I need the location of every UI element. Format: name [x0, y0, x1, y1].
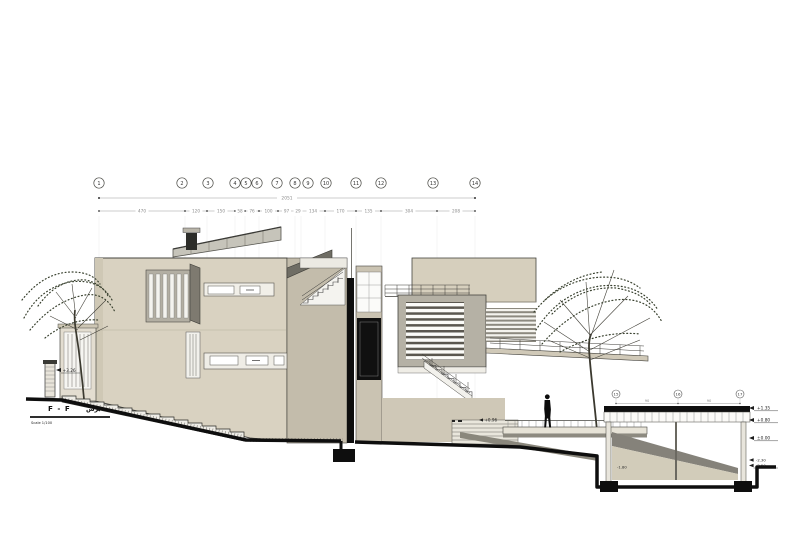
segment-dimension-label: 208 — [452, 208, 460, 213]
scale-label: Scale 1/100 — [31, 421, 53, 425]
basement-level-label: -1.80 — [617, 465, 627, 470]
right-wall — [741, 422, 746, 482]
left-wing: +3.26 — [43, 324, 98, 401]
segment-dimension-label: 29 — [295, 208, 301, 213]
level-label: -2.50 — [756, 463, 766, 468]
grid-label: 8 — [293, 181, 296, 187]
segment-dimension-label: 76 — [249, 208, 255, 213]
terrain-pier-footing — [333, 449, 355, 462]
grid-label: 6 — [255, 181, 258, 187]
window-pane — [210, 356, 238, 365]
window-pane — [274, 356, 284, 365]
chimney-body — [186, 233, 197, 250]
segment-dimension-label: 120 — [192, 208, 200, 213]
overall-dimension-label: 2051 — [281, 196, 292, 202]
person-silhouette — [544, 394, 551, 427]
segment-dimension-label: 134 — [309, 208, 317, 213]
landing-marker-b — [458, 420, 462, 422]
grid-label: 3 — [206, 181, 209, 187]
grid-bubbles: 1 2 3 4 5 6 7 8 9 10 11 12 13 14 — [94, 178, 480, 188]
section-cut-wall — [347, 278, 354, 443]
overall-dimension-line: 2051 — [98, 195, 476, 201]
section-drawing: 1 2 3 4 5 6 7 8 9 10 11 12 13 14 2051 — [0, 0, 787, 556]
level-arrow-icon — [749, 436, 754, 440]
right-upper-volumes — [385, 258, 648, 403]
segment-dimension-label: 135 — [365, 208, 373, 213]
sub-grid-dimension: 90 — [707, 399, 712, 403]
grid-label: 1 — [97, 181, 100, 187]
segment-dimension-label: 100 — [265, 208, 273, 213]
segment-dimension-label: 58 — [237, 208, 243, 213]
section-title-arabic: برش — [86, 406, 101, 413]
architectural-section-sheet: 1 2 3 4 5 6 7 8 9 10 11 12 13 14 2051 — [0, 0, 787, 556]
tower-dark-window — [357, 318, 381, 380]
segment-dimension-line: 470 120 150 58 76 100 97 29 134 170 135 … — [98, 208, 476, 213]
grid-label: 9 — [306, 181, 309, 187]
mid-landing-level-label: +0.96 — [485, 418, 498, 423]
stair-landing-band — [300, 258, 347, 268]
roof-slab — [604, 406, 750, 412]
gate-pedestal — [45, 363, 55, 397]
pedestal-cap — [43, 360, 57, 364]
middle-post — [675, 422, 677, 480]
left-wall — [606, 422, 611, 482]
level-label: -2.30 — [756, 457, 766, 462]
grid-label: 5 — [244, 181, 247, 187]
level-marker-roof-deck: +1.35 — [749, 406, 778, 412]
grid-label: 4 — [233, 181, 236, 187]
grid-label: 7 — [275, 181, 278, 187]
sub-grid: 15 16 17 90 90 — [612, 390, 744, 404]
grid-label: 14 — [472, 181, 478, 187]
grid-label: 11 — [353, 181, 359, 187]
segment-dimension-label: 170 — [337, 208, 345, 213]
window-pane — [208, 286, 234, 294]
side-louvre-base — [486, 308, 536, 342]
sub-grid-label: 15 — [614, 392, 619, 397]
right-level-markers: +1.35 +0.80 ±0.00 -2.30 -2.50 — [749, 406, 778, 468]
grid-label: 13 — [430, 181, 436, 187]
level-arrow-icon — [56, 368, 61, 372]
walkway-deck — [503, 427, 647, 434]
segment-dimension-label: 304 — [405, 208, 413, 213]
level-marker-deck-soffit: +0.80 — [749, 418, 778, 424]
grid-label: 10 — [323, 181, 329, 187]
sunken-structure: -1.80 — [600, 406, 752, 492]
section-title: F - F — [48, 404, 71, 413]
landing-marker-a — [452, 420, 455, 422]
level-marker-ground: ±0.00 — [749, 436, 778, 442]
sub-grid-label: 17 — [738, 392, 743, 397]
level-marker-footing-top: -2.30 — [749, 457, 766, 462]
joist-band — [604, 412, 750, 422]
chimney-cap — [183, 228, 200, 233]
sub-grid-label: 16 — [676, 392, 681, 397]
level-arrow-icon — [749, 458, 754, 461]
angled-bay-fin — [190, 264, 200, 324]
segment-dimension-label: 470 — [138, 208, 146, 213]
level-arrow-icon — [749, 464, 754, 467]
grid-label: 2 — [180, 181, 183, 187]
grid-label: 12 — [378, 181, 384, 187]
segment-dimension-label: 97 — [284, 208, 290, 213]
stair-core-zone — [287, 228, 382, 443]
segment-dimension-label: 150 — [217, 208, 225, 213]
tree-foliage — [534, 272, 662, 352]
sub-grid-dimension: 90 — [645, 399, 650, 403]
title-block: F - F برش Scale 1/100 — [30, 404, 110, 425]
